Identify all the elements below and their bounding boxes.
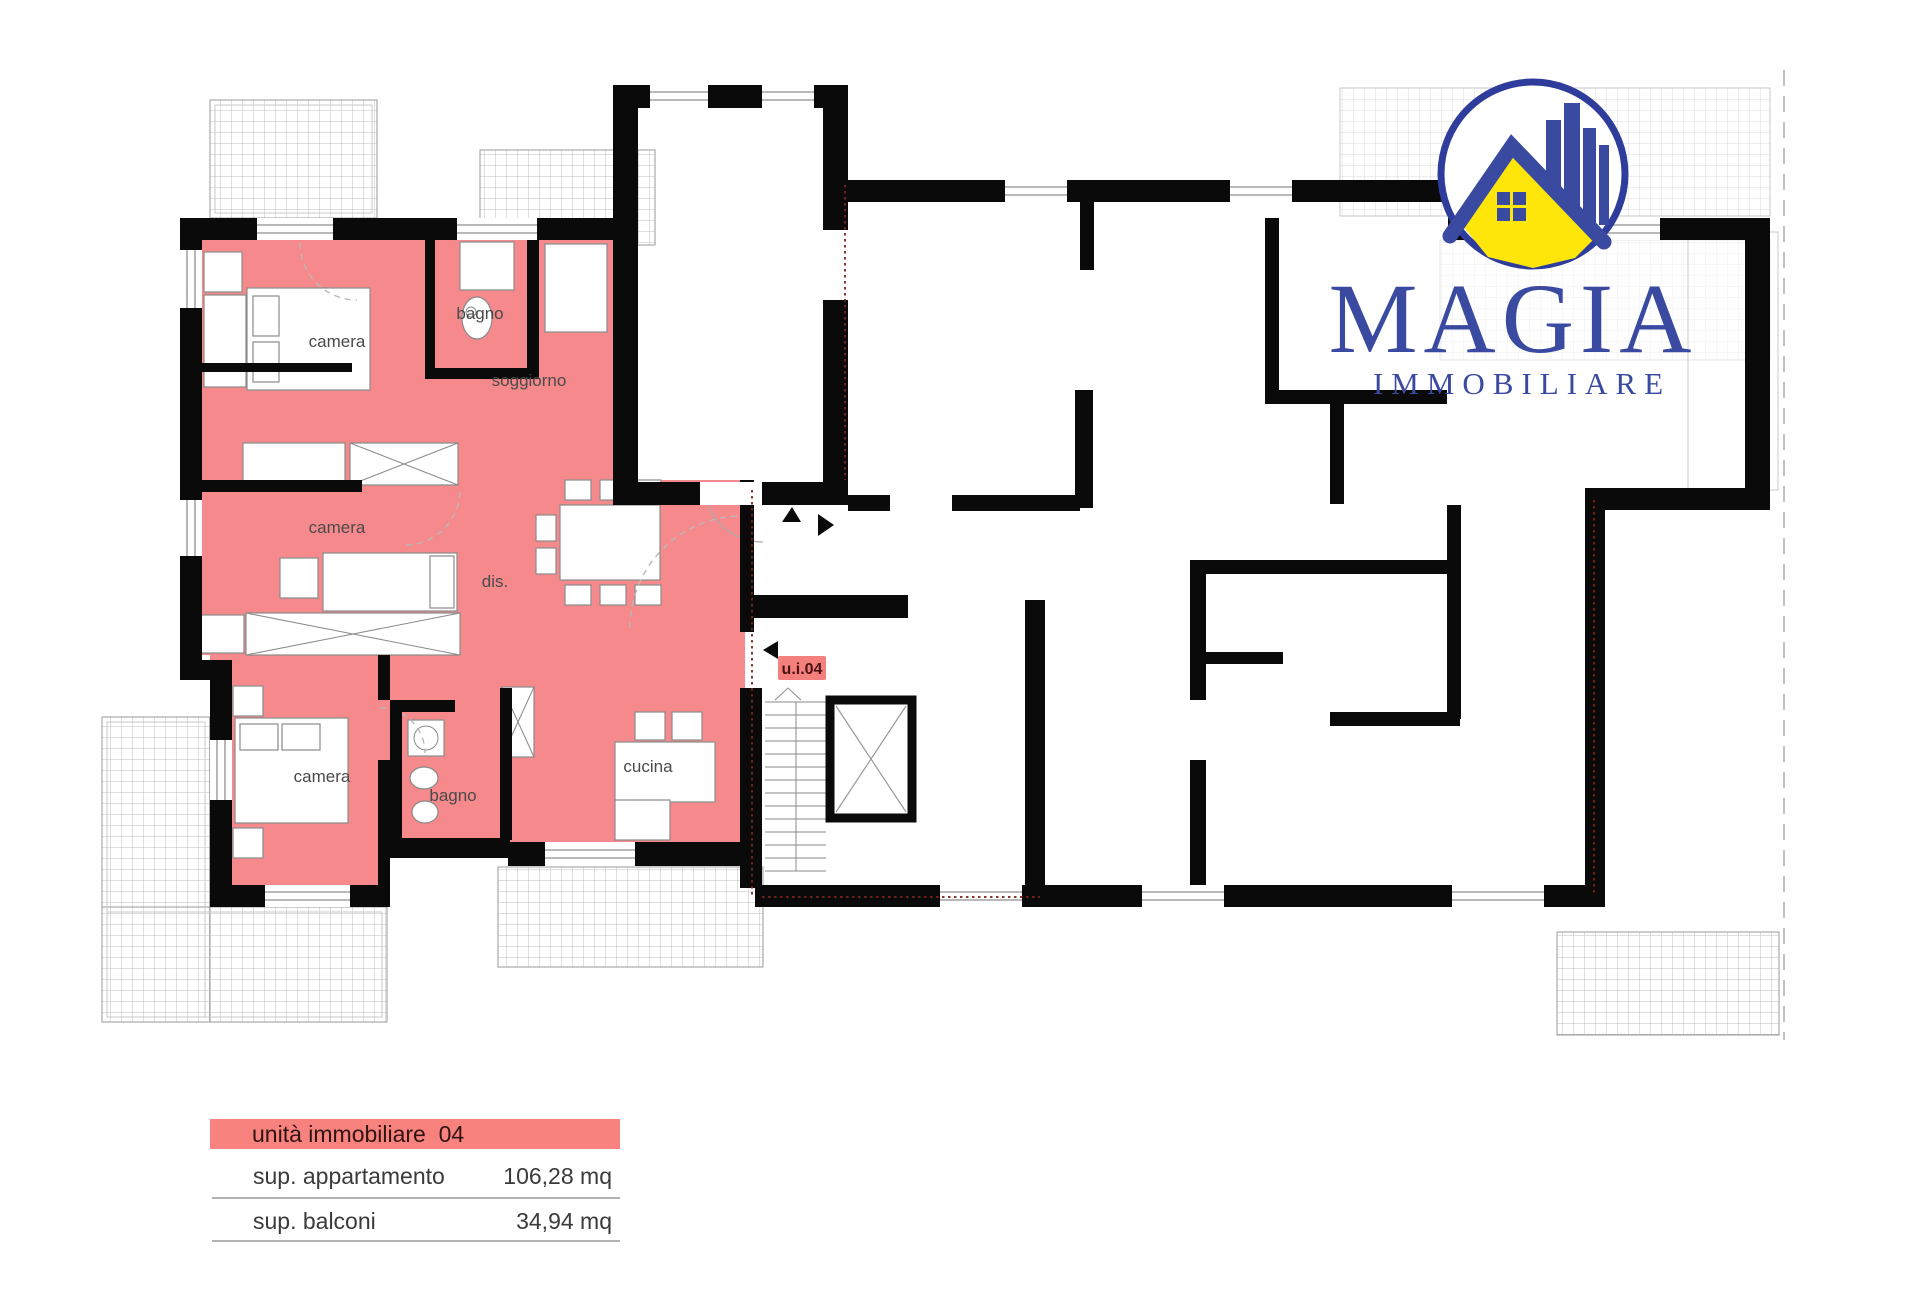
nightstand <box>280 558 318 598</box>
logo-wordmark: MAGIA <box>1329 263 1698 374</box>
nightstand <box>204 295 246 387</box>
chair <box>635 585 661 605</box>
door-opening <box>700 482 762 505</box>
legend-table: unità immobiliare 04 sup. appartamento 1… <box>210 1119 620 1241</box>
chair <box>600 585 626 605</box>
floor-plan-page: u.i.04 camera bagno soggiorno camera dis… <box>0 0 1920 1303</box>
door-opening <box>890 495 952 511</box>
door-markers <box>763 507 834 659</box>
unit-tag-label: u.i.04 <box>782 661 823 678</box>
door-opening <box>1190 700 1206 760</box>
legend-row-label: sup. appartamento <box>253 1163 445 1189</box>
terrace-bottom-right <box>1557 932 1779 1035</box>
stairwell <box>765 688 912 871</box>
sofa-shelf <box>545 244 607 332</box>
unit-tag: u.i.04 <box>778 656 826 680</box>
terrace-left-horizontal <box>102 907 387 1022</box>
legend-row-value: 34,94 mq <box>516 1208 612 1234</box>
stair-direction-arrow <box>775 688 801 700</box>
door-triangle-up <box>782 507 801 522</box>
room-label-bagno-1: bagno <box>456 304 503 323</box>
wardrobe <box>200 615 244 653</box>
door-triangle-left <box>763 641 778 659</box>
chair <box>565 480 591 500</box>
chair <box>565 585 591 605</box>
room-label-bagno-2: bagno <box>429 786 476 805</box>
room-label-camera-1: camera <box>309 332 366 351</box>
legend-row-label: sup. balconi <box>253 1208 376 1234</box>
room-label-camera-3: camera <box>294 767 351 786</box>
floor-plan-drawing: u.i.04 camera bagno soggiorno camera dis… <box>0 0 1920 1303</box>
dining-table <box>560 505 660 580</box>
nightstand <box>233 828 263 858</box>
room-label-soggiorno: soggiorno <box>492 371 567 390</box>
terrace-bottom-center <box>498 867 763 967</box>
washing-machine <box>408 720 444 756</box>
logo-subtitle: IMMOBILIARE <box>1373 366 1671 401</box>
nightstand <box>233 686 263 716</box>
legend-row-value: 106,28 mq <box>503 1163 612 1189</box>
balcony-top-left <box>210 100 377 218</box>
door-triangle-right <box>818 514 834 536</box>
stool <box>635 712 665 740</box>
kitchen-counter <box>615 800 670 840</box>
room-label-cucina: cucina <box>623 757 673 776</box>
room-label-camera-2: camera <box>309 518 366 537</box>
wardrobe <box>243 443 345 485</box>
chair <box>536 548 556 574</box>
room-label-dis: dis. <box>482 572 508 591</box>
chair <box>536 515 556 541</box>
stool <box>672 712 702 740</box>
legend-header-label: unità immobiliare 04 <box>252 1121 464 1147</box>
nightstand <box>204 252 242 292</box>
sofa <box>460 242 514 290</box>
